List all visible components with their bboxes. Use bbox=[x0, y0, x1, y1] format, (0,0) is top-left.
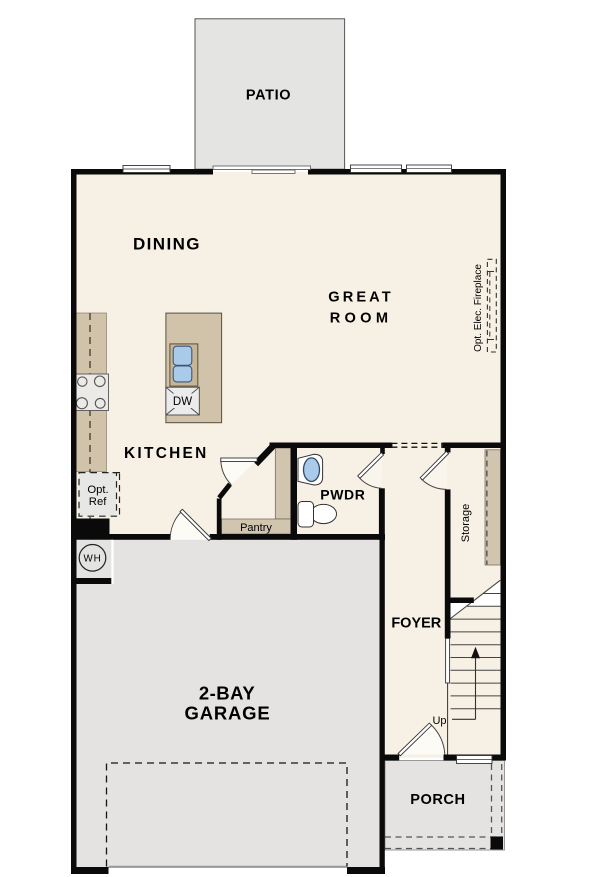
svg-text:Opt.: Opt. bbox=[87, 484, 108, 496]
svg-text:PWDR: PWDR bbox=[320, 486, 365, 502]
svg-text:ROOM: ROOM bbox=[330, 311, 393, 327]
svg-text:Storage: Storage bbox=[460, 504, 472, 543]
svg-text:PATIO: PATIO bbox=[246, 88, 291, 104]
svg-text:GREAT: GREAT bbox=[328, 290, 394, 306]
svg-text:GARAGE: GARAGE bbox=[185, 703, 271, 724]
svg-text:PORCH: PORCH bbox=[410, 792, 465, 808]
svg-text:WH: WH bbox=[84, 554, 102, 565]
svg-text:Opt. Elec. Fireplace: Opt. Elec. Fireplace bbox=[473, 264, 484, 352]
svg-text:Ref: Ref bbox=[89, 496, 107, 508]
svg-text:DINING: DINING bbox=[133, 234, 201, 253]
svg-text:KITCHEN: KITCHEN bbox=[124, 445, 209, 462]
svg-text:DW: DW bbox=[173, 396, 192, 408]
svg-text:2-BAY: 2-BAY bbox=[199, 683, 255, 704]
svg-text:Up: Up bbox=[432, 715, 446, 727]
svg-text:Pantry: Pantry bbox=[240, 522, 272, 534]
svg-text:FOYER: FOYER bbox=[391, 615, 441, 631]
